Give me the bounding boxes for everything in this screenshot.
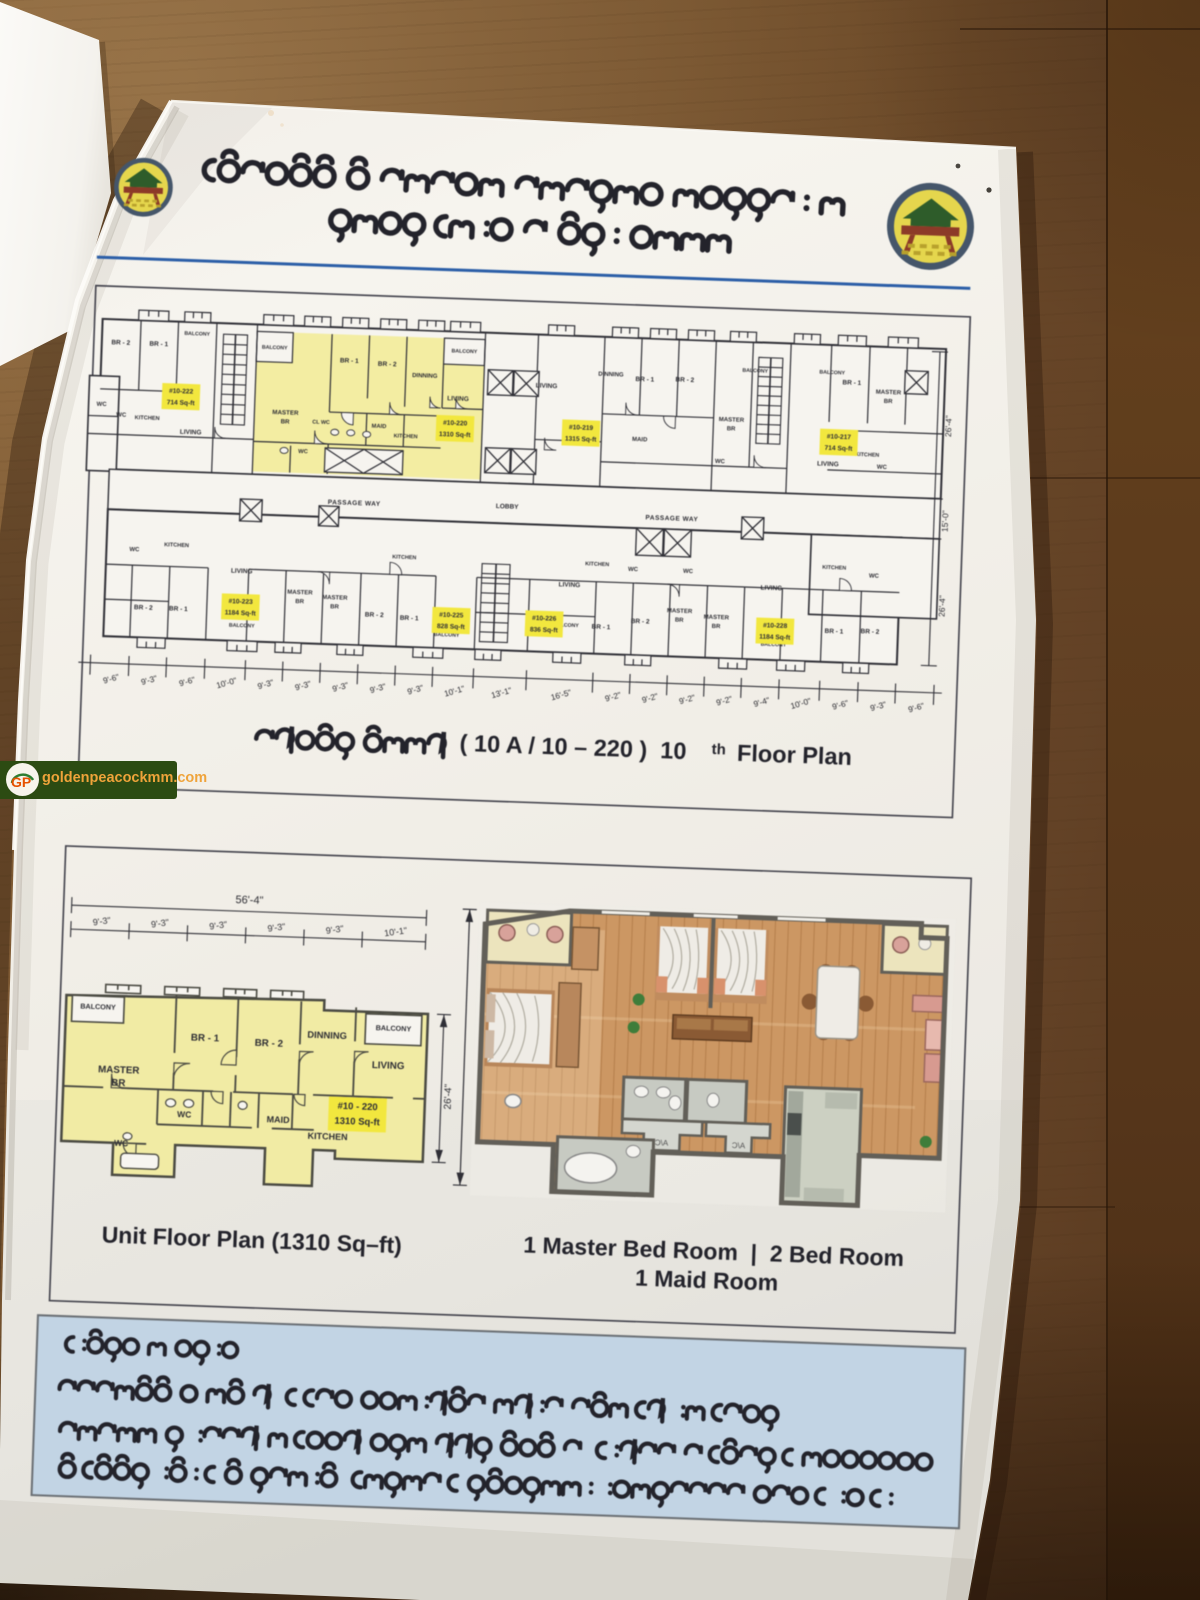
svg-text:BR - 1: BR - 1	[191, 1032, 220, 1044]
svg-text:9'-3": 9'-3"	[209, 919, 228, 931]
svg-text:MAID: MAID	[632, 437, 648, 444]
svg-text:WC: WC	[683, 569, 694, 575]
svg-text:56'-4": 56'-4"	[235, 894, 264, 907]
svg-text:BR - 2: BR - 2	[631, 618, 650, 626]
svg-text:9'-3": 9'-3"	[267, 921, 286, 933]
svg-text:#10-217: #10-217	[827, 433, 852, 441]
svg-text:9'-4": 9'-4"	[753, 696, 771, 709]
svg-text:MAID: MAID	[371, 424, 386, 431]
svg-text:KITCHEN: KITCHEN	[307, 1131, 347, 1142]
svg-text:KITCHEN: KITCHEN	[394, 433, 418, 440]
svg-text:MASTER: MASTER	[667, 608, 693, 615]
svg-text:KITCHEN: KITCHEN	[135, 415, 160, 422]
svg-text:BALCONY: BALCONY	[742, 368, 768, 375]
svg-text:13'-1": 13'-1"	[490, 686, 513, 700]
svg-text:1184 Sq-ft: 1184 Sq-ft	[759, 634, 791, 642]
svg-text:BR - 2: BR - 2	[365, 611, 384, 619]
svg-text:BR - 2: BR - 2	[675, 376, 694, 384]
svg-text:BR - 1: BR - 1	[635, 376, 654, 384]
svg-text:10'-1": 10'-1"	[443, 684, 466, 698]
svg-text:9'-3": 9'-3"	[406, 683, 424, 696]
svg-text:9'-6": 9'-6"	[907, 701, 925, 714]
svg-text:LIVING: LIVING	[536, 382, 558, 390]
svg-text:WC: WC	[129, 547, 140, 553]
svg-text:BR - 1: BR - 1	[169, 605, 188, 613]
svg-text:LIVING: LIVING	[231, 568, 253, 576]
svg-text:BALCONY: BALCONY	[819, 370, 845, 377]
svg-text:BR - 2: BR - 2	[860, 628, 879, 636]
svg-text:9'-3": 9'-3"	[869, 700, 887, 713]
svg-text:1310 Sq-ft: 1310 Sq-ft	[439, 431, 472, 439]
svg-text:GP: GP	[11, 774, 31, 790]
svg-text:WC: WC	[298, 449, 309, 455]
svg-text:BALCONY: BALCONY	[80, 1002, 116, 1012]
svg-text:1310 Sq-ft: 1310 Sq-ft	[334, 1116, 381, 1129]
svg-text:9'-3": 9'-3"	[294, 679, 312, 692]
svg-text:WC: WC	[869, 573, 880, 579]
svg-text:BR - 2: BR - 2	[111, 339, 130, 347]
svg-text:26'-4": 26'-4"	[943, 415, 954, 437]
svg-text:WC: WC	[114, 1138, 129, 1149]
svg-text:BR - 1: BR - 1	[842, 379, 861, 387]
svg-text:9'-3": 9'-3"	[325, 923, 344, 935]
svg-text:714 Sq-ft: 714 Sq-ft	[824, 445, 853, 453]
svg-text:9'-3": 9'-3"	[369, 682, 387, 695]
svg-text:WC: WC	[116, 412, 127, 418]
svg-text:MASTER: MASTER	[98, 1064, 140, 1076]
svg-text:#10-222: #10-222	[169, 388, 194, 396]
svg-text:9'-2": 9'-2"	[678, 693, 696, 706]
svg-text:MASTER: MASTER	[876, 390, 902, 397]
svg-text:LIVING: LIVING	[760, 585, 782, 593]
svg-text:KITCHEN: KITCHEN	[585, 561, 609, 568]
svg-text:9'-2": 9'-2"	[641, 692, 659, 705]
svg-text:LOBBY: LOBBY	[496, 503, 520, 511]
svg-text:10'-0": 10'-0"	[790, 697, 813, 711]
svg-text:BR: BR	[884, 399, 894, 405]
svg-text:#10-228: #10-228	[763, 622, 788, 630]
svg-text:#10-223: #10-223	[228, 598, 253, 606]
svg-text:WC: WC	[628, 567, 639, 573]
svg-text:BALCONY: BALCONY	[376, 1023, 412, 1033]
svg-text:BR: BR	[727, 426, 737, 432]
svg-text:9'-6": 9'-6"	[178, 675, 196, 688]
svg-text:#10 - 220: #10 - 220	[337, 1101, 378, 1113]
svg-text:BR - 1: BR - 1	[400, 615, 419, 623]
svg-text:9'-2": 9'-2"	[604, 690, 622, 703]
svg-text:9'-6": 9'-6"	[102, 672, 120, 685]
svg-text:BR: BR	[295, 599, 305, 605]
svg-text:#10-225: #10-225	[439, 612, 464, 620]
svg-text:1315 Sq-ft: 1315 Sq-ft	[565, 435, 598, 443]
svg-text:BR - 1: BR - 1	[340, 357, 359, 365]
svg-text:DINNING: DINNING	[598, 372, 624, 379]
svg-text:LIVING: LIVING	[372, 1060, 405, 1072]
svg-text:( 10 A / 10 – 220 ) 10: ( 10 A / 10 – 220 ) 10	[459, 730, 687, 764]
svg-text:1184 Sq-ft: 1184 Sq-ft	[225, 609, 257, 617]
svg-text:836 Sq-ft: 836 Sq-ft	[530, 626, 559, 634]
svg-text:Unit Floor Plan (1310 Sq–ft): Unit Floor Plan (1310 Sq–ft)	[101, 1221, 402, 1258]
svg-text:KITCHEN: KITCHEN	[164, 542, 189, 549]
svg-text:10'-0": 10'-0"	[215, 676, 238, 690]
svg-text:KITCHEN: KITCHEN	[392, 554, 416, 561]
svg-text:15'-0": 15'-0"	[940, 510, 951, 532]
svg-text:A/C: A/C	[731, 1141, 745, 1150]
svg-text:BALCONY: BALCONY	[451, 348, 477, 355]
svg-text:MASTER: MASTER	[704, 615, 730, 622]
svg-text:LIVING: LIVING	[558, 581, 580, 589]
svg-text:MAID: MAID	[266, 1114, 290, 1125]
svg-text:WC: WC	[877, 465, 888, 471]
svg-text:DINNING: DINNING	[307, 1029, 347, 1041]
svg-text:16'-5": 16'-5"	[550, 688, 573, 702]
svg-text:1 Master Bed Room | 2 Bed Ro: 1 Master Bed Room | 2 Bed Room	[523, 1232, 905, 1272]
svg-text:BR - 1: BR - 1	[591, 624, 610, 632]
svg-text:LIVING: LIVING	[447, 395, 469, 403]
svg-text:LIVING: LIVING	[817, 461, 839, 469]
svg-text:BR - 1: BR - 1	[824, 628, 843, 636]
svg-text:WC: WC	[96, 402, 107, 408]
svg-text:BALCONY: BALCONY	[184, 331, 210, 338]
svg-text:BR - 2: BR - 2	[378, 361, 397, 369]
svg-text:BR: BR	[330, 604, 340, 610]
svg-text:A/C: A/C	[654, 1138, 668, 1147]
svg-text:9'-3": 9'-3"	[140, 674, 158, 687]
svg-text:9'-2": 9'-2"	[715, 694, 733, 707]
svg-text:BR: BR	[280, 418, 290, 425]
svg-text:10'-1": 10'-1"	[384, 925, 408, 938]
svg-text:KITCHEN: KITCHEN	[822, 565, 846, 572]
svg-text:9'-3": 9'-3"	[331, 681, 349, 694]
svg-text:DINNING: DINNING	[412, 373, 438, 380]
svg-text:BR - 2: BR - 2	[134, 604, 153, 612]
svg-text:1 Maid Room: 1 Maid Room	[635, 1265, 779, 1296]
svg-text:Floor Plan: Floor Plan	[730, 740, 852, 770]
svg-text:MASTER: MASTER	[322, 595, 348, 602]
svg-text:828 Sq-ft: 828 Sq-ft	[437, 623, 466, 631]
svg-text:BALCONY: BALCONY	[229, 623, 255, 630]
svg-text:MASTER: MASTER	[272, 409, 299, 417]
svg-text:9'-6": 9'-6"	[831, 699, 849, 712]
svg-text:th: th	[711, 741, 726, 758]
svg-text:BR: BR	[712, 624, 722, 630]
svg-text:BR: BR	[675, 618, 685, 624]
svg-text:BR - 2: BR - 2	[254, 1038, 283, 1050]
svg-text:LIVING: LIVING	[180, 429, 202, 437]
svg-text:WC: WC	[715, 459, 726, 465]
svg-text:9'-3": 9'-3"	[150, 917, 169, 929]
svg-text:26'-4": 26'-4"	[937, 595, 948, 617]
svg-text:#10-226: #10-226	[532, 615, 557, 623]
svg-text:#10-220: #10-220	[443, 420, 468, 428]
svg-text:714 Sq-ft: 714 Sq-ft	[167, 399, 196, 407]
svg-text:CL WC: CL WC	[312, 419, 330, 426]
svg-text:26'-4": 26'-4"	[443, 1083, 455, 1109]
svg-text:WC: WC	[177, 1109, 192, 1120]
svg-text:BALCONY: BALCONY	[262, 345, 288, 352]
svg-text:9'-3": 9'-3"	[257, 678, 275, 691]
svg-text:KITCHEN: KITCHEN	[855, 452, 879, 459]
svg-text:MASTER: MASTER	[287, 590, 313, 597]
svg-text:BR - 1: BR - 1	[149, 341, 168, 349]
svg-text:BR: BR	[111, 1078, 126, 1089]
svg-text:9'-3": 9'-3"	[92, 915, 111, 927]
svg-text:#10-219: #10-219	[569, 424, 594, 432]
svg-text:MASTER: MASTER	[719, 417, 745, 424]
